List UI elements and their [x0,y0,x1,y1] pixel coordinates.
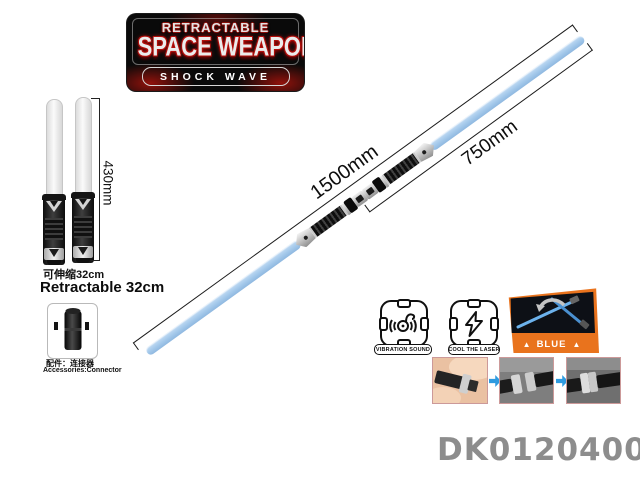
connector-image [64,311,81,350]
accessory-caption-en: Accessories:Connector [43,367,122,374]
assembly-photo-3 [566,357,621,404]
dimension-750: 750mm [369,49,593,212]
product-code: DK01204002 [437,432,640,468]
blue-color-badge: ▲ BLUE ▲ [504,287,599,353]
small-saber-right [71,97,95,263]
assembly-photo-1 [432,357,488,404]
connector-tab [54,322,58,330]
blue-label-band: ▲ BLUE ▲ [504,336,599,353]
cool-the-laser-label: COOL THE LASER [448,344,500,355]
vibration-sound-label: VIBRATION SOUND [374,344,432,355]
triangle-icon: ▲ [523,340,531,349]
triangle-icon: ▲ [572,340,580,349]
dimension-line [369,49,593,212]
cool-the-laser-badge [450,300,498,347]
blue-label: BLUE [537,339,567,350]
vibration-sound-badge [380,300,428,347]
assembly-photo-2 [499,357,554,404]
small-saber-handle [43,194,65,265]
small-saber-handle [72,192,94,263]
vibration-sound-icon [389,309,419,339]
logo-banner: RETRACTABLE SPACE WEAPON SHOCK WAVE [127,14,304,91]
connector-photo-box [47,303,98,359]
small-saber-blade [75,97,92,193]
blade-left [144,239,302,356]
logo-shock-wave-text: SHOCK WAVE [142,67,290,86]
logo-space-weapon-text: SPACE WEAPON [138,32,294,63]
retractable-caption-en: Retractable 32cm [40,279,164,296]
small-saber-left [42,99,66,265]
product-sheet: RETRACTABLE SPACE WEAPON SHOCK WAVE 430m… [0,0,640,480]
small-saber-blade [46,99,63,195]
dimension-label-430: 430mm [101,160,116,205]
crossed-sabers-icon [508,291,595,333]
connector-tab [85,322,89,330]
crossed-sabers-graphic [508,291,595,333]
lightning-bolt-icon [459,309,489,339]
